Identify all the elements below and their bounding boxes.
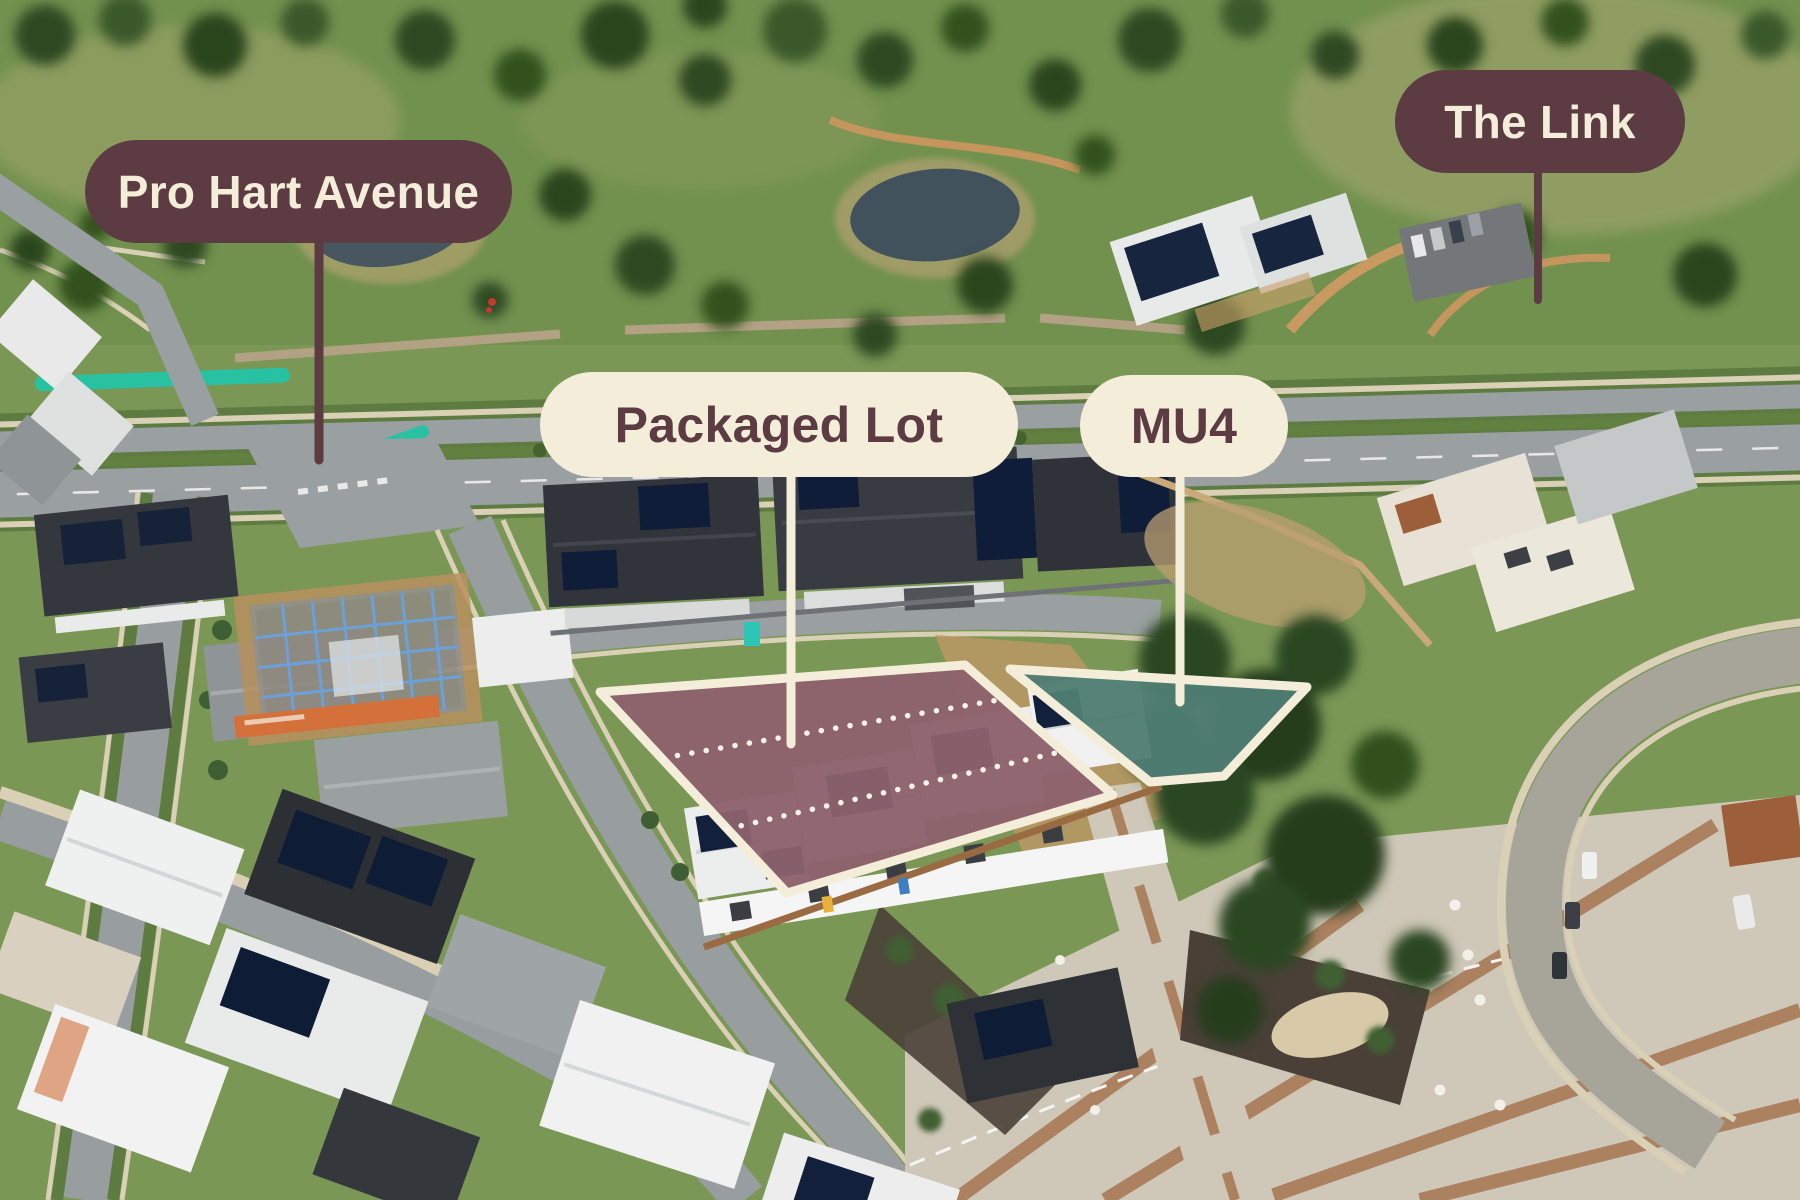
packaged-lot-polygon	[600, 665, 1113, 893]
label-mu4-text: MU4	[1131, 397, 1237, 455]
label-pro-hart-avenue-text: Pro Hart Avenue	[118, 165, 480, 219]
label-the-link: The Link	[1395, 70, 1685, 173]
label-mu4: MU4	[1080, 375, 1288, 477]
label-packaged-lot-text: Packaged Lot	[615, 396, 944, 454]
label-the-link-text: The Link	[1444, 95, 1636, 149]
label-pro-hart-avenue: Pro Hart Avenue	[85, 140, 512, 243]
label-packaged-lot: Packaged Lot	[540, 372, 1018, 477]
aerial-site-map: Pro Hart Avenue The Link Packaged Lot MU…	[0, 0, 1800, 1200]
